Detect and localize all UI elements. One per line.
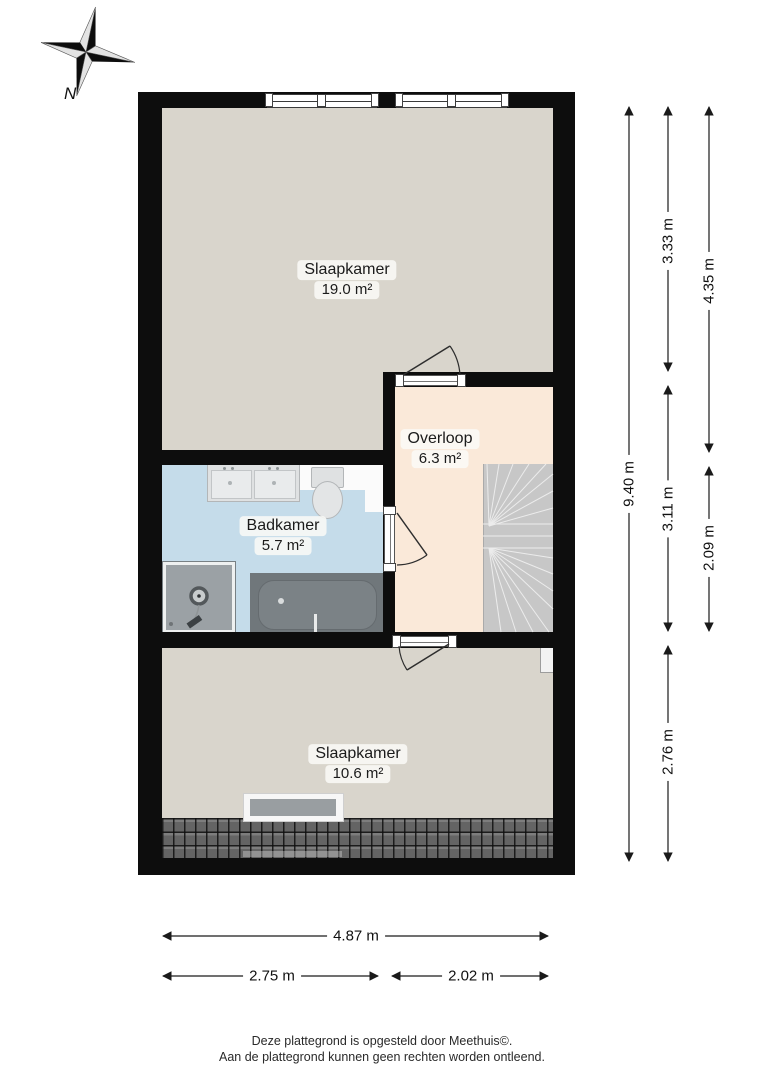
bathtub-basin [258, 580, 377, 630]
room-label-bedroom-large: Slaapkamer 19.0 m² [297, 260, 396, 300]
roof-window-lower-edge [243, 851, 342, 857]
door-threshold-bedroom-small [399, 636, 448, 647]
room-name: Overloop [401, 429, 480, 449]
door-jamb [457, 374, 466, 387]
window-jamb [501, 93, 509, 107]
faucet-dot [223, 467, 226, 470]
room-name: Badkamer [240, 516, 327, 536]
sink-drain-dot [228, 481, 232, 485]
dim-height-276: 2.76 m [660, 723, 677, 781]
door-threshold-bathroom [384, 513, 395, 563]
room-area: 5.7 m² [255, 538, 312, 555]
staircase [483, 464, 554, 632]
room-name: Slaapkamer [308, 744, 407, 764]
wall-bathroom-top [138, 450, 395, 465]
wall-right [553, 92, 575, 875]
faucet-dot [276, 467, 279, 470]
wall-middle-bottom [138, 632, 575, 648]
window-jamb [395, 93, 403, 107]
footer-disclaimer: Deze plattegrond is opgesteld door Meeth… [0, 1034, 764, 1065]
sink-drain-dot [272, 481, 276, 485]
door-jamb [448, 635, 457, 648]
dim-height-333: 3.33 m [660, 212, 677, 270]
window-mullion [447, 94, 456, 107]
footer-line1: Deze plattegrond is opgesteld door Meeth… [0, 1034, 764, 1050]
toilet-bowl [312, 481, 343, 519]
room-area: 6.3 m² [412, 451, 469, 468]
room-label-landing: Overloop 6.3 m² [401, 429, 480, 469]
dim-width-202: 2.02 m [442, 968, 500, 985]
room-area: 19.0 m² [315, 282, 380, 299]
compass-north-label: N [64, 84, 76, 104]
dim-height-435: 4.35 m [701, 252, 718, 310]
faucet-dot [231, 467, 234, 470]
floor-plan-page: N Slaapkamer 19.0 m² Overloop 6.3 m² Bad… [0, 0, 764, 1080]
faucet-dot [268, 467, 271, 470]
room-name: Slaapkamer [297, 260, 396, 280]
wall-bottom [138, 858, 575, 875]
door-jamb [392, 635, 401, 648]
footer-line2: Aan de plattegrond kunnen geen rechten w… [0, 1050, 764, 1066]
window-jamb [371, 93, 379, 107]
door-jamb [383, 506, 396, 515]
dim-height-209: 2.09 m [701, 519, 718, 577]
room-label-bedroom-small: Slaapkamer 10.6 m² [308, 744, 407, 784]
door-jamb [395, 374, 404, 387]
bathtub-faucet [314, 614, 317, 633]
compass-rose [32, 0, 145, 106]
door-jamb [383, 563, 396, 572]
dim-height-311: 3.11 m [660, 481, 677, 538]
dim-total-width: 4.87 m [327, 928, 385, 945]
roof-window-glass [250, 799, 336, 816]
dim-width-275: 2.75 m [243, 968, 301, 985]
wall-left [138, 92, 162, 875]
room-area: 10.6 m² [326, 766, 391, 783]
window-mullion [317, 94, 326, 107]
roof-tiles-hatch [162, 818, 553, 858]
door-threshold-bedroom-large [400, 375, 460, 386]
bathtub-drain-dot [278, 598, 284, 604]
sink-left [211, 470, 252, 499]
window-jamb [265, 93, 273, 107]
shower-tray [163, 562, 235, 633]
dim-total-height: 9.40 m [621, 455, 638, 513]
toilet-recess-side [365, 464, 383, 512]
room-label-bathroom: Badkamer 5.7 m² [240, 516, 327, 556]
